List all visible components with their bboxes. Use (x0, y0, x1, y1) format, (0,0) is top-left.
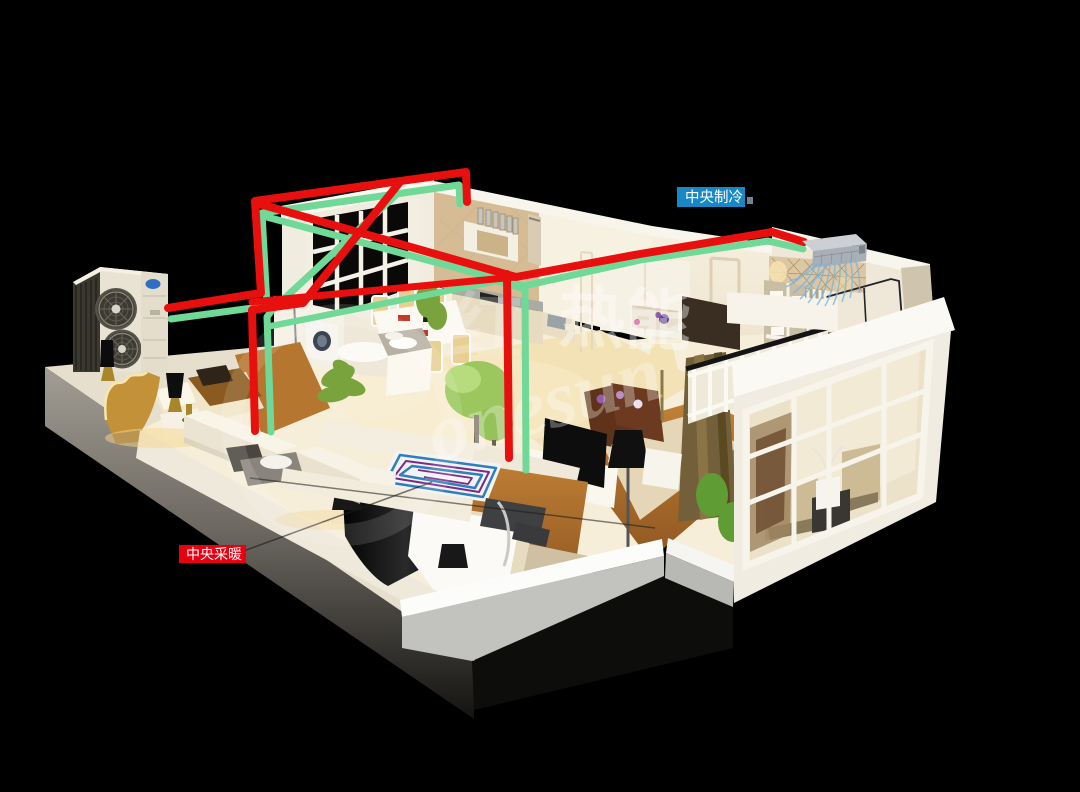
svg-text:红: 红 (447, 285, 524, 371)
svg-text:中央采暖: 中央采暖 (186, 546, 242, 562)
svg-text:中央制冷: 中央制冷 (685, 189, 743, 206)
